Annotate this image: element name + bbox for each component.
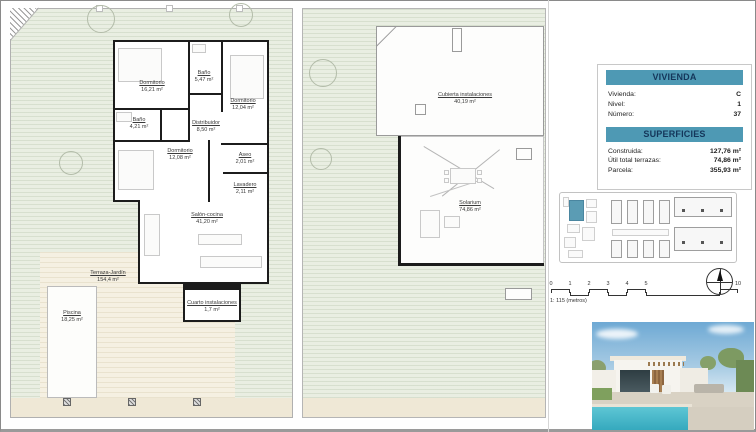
rooflight (415, 104, 426, 115)
wall (398, 263, 544, 266)
info-row: Construida: 127,76 m² (608, 147, 741, 157)
site-unit (659, 240, 670, 258)
site-plan (559, 192, 737, 263)
info-row: Número: 37 (608, 110, 741, 120)
room-label: Cubierta instalaciones 40,19 m² (438, 92, 492, 105)
site-mark (701, 241, 704, 244)
scale-tick: 2 (587, 281, 590, 287)
walkway-band (303, 398, 545, 417)
tree-icon (310, 148, 332, 170)
scale-tick: 1 (568, 281, 571, 287)
coffee-table (444, 216, 460, 228)
site-mark (682, 209, 685, 212)
pool-chair (662, 385, 671, 394)
vivienda-rows: Vivienda: C Nivel: 1 Número: 37 (608, 90, 741, 120)
glass-doors (620, 370, 650, 392)
site-path (612, 229, 669, 236)
site-unit (611, 200, 622, 224)
info-row: Parcela: 355,93 m² (608, 166, 741, 176)
scale-tick: 5 (644, 281, 647, 287)
scale-tick: 3 (606, 281, 609, 287)
lounge-sofa (420, 210, 440, 238)
site-mark (682, 241, 685, 244)
superficies-header: SUPERFICIES (606, 127, 743, 142)
highlighted-unit (569, 200, 584, 221)
room-label: Solarium 74,86 m² (459, 200, 481, 213)
site-unit (563, 197, 569, 207)
panel-divider (548, 0, 549, 432)
site-unit (643, 200, 654, 224)
site-mark (720, 209, 723, 212)
site-unit (564, 237, 576, 248)
superficies-rows: Construida: 127,76 m² Útil total terraza… (608, 147, 741, 177)
site-rowhouse-block (674, 197, 732, 217)
tree-icon (309, 59, 337, 87)
pool-deck (688, 407, 754, 430)
pool-chair (650, 384, 659, 393)
info-row: Nivel: 1 (608, 100, 741, 110)
site-unit (586, 211, 597, 223)
scale-tick: 0 (549, 281, 552, 287)
scale-bar: 0 1 2 3 4 5 10 1: 115 (metros) (550, 281, 742, 307)
cloud (596, 329, 638, 339)
scale-tick: 4 (625, 281, 628, 287)
site-unit (659, 200, 670, 224)
site-unit (627, 240, 638, 258)
site-unit (567, 224, 580, 233)
roof-vent (452, 28, 462, 52)
site-mark (720, 241, 723, 244)
chair (444, 170, 449, 175)
dining-table (450, 168, 476, 184)
scale-label: 1: 115 (metros) (550, 298, 587, 304)
info-row: Útil total terrazas: 74,86 m² (608, 156, 741, 166)
pool-water (592, 407, 688, 430)
site-unit (627, 200, 638, 224)
chair (477, 178, 482, 183)
site-unit (582, 227, 595, 241)
site-unit (568, 250, 583, 258)
wall (398, 136, 401, 266)
render-photo (592, 322, 754, 430)
site-unit (643, 240, 654, 258)
chair (444, 178, 449, 183)
chair (477, 170, 482, 175)
site-mark (701, 209, 704, 212)
vivienda-header: VIVIENDA (606, 70, 743, 85)
planter (516, 148, 532, 160)
cloud (708, 325, 744, 334)
info-row: Vivienda: C (608, 90, 741, 100)
site-unit (586, 199, 597, 208)
info-panel: VIVIENDA Vivienda: C Nivel: 1 Número: 37… (597, 64, 752, 190)
site-unit (611, 240, 622, 258)
scale-tick: 10 (735, 281, 741, 287)
equipment-box (505, 288, 532, 300)
lawn (592, 388, 612, 400)
dining-set (694, 384, 724, 393)
pergola-slats (648, 362, 684, 366)
site-rowhouse-block (674, 227, 732, 251)
